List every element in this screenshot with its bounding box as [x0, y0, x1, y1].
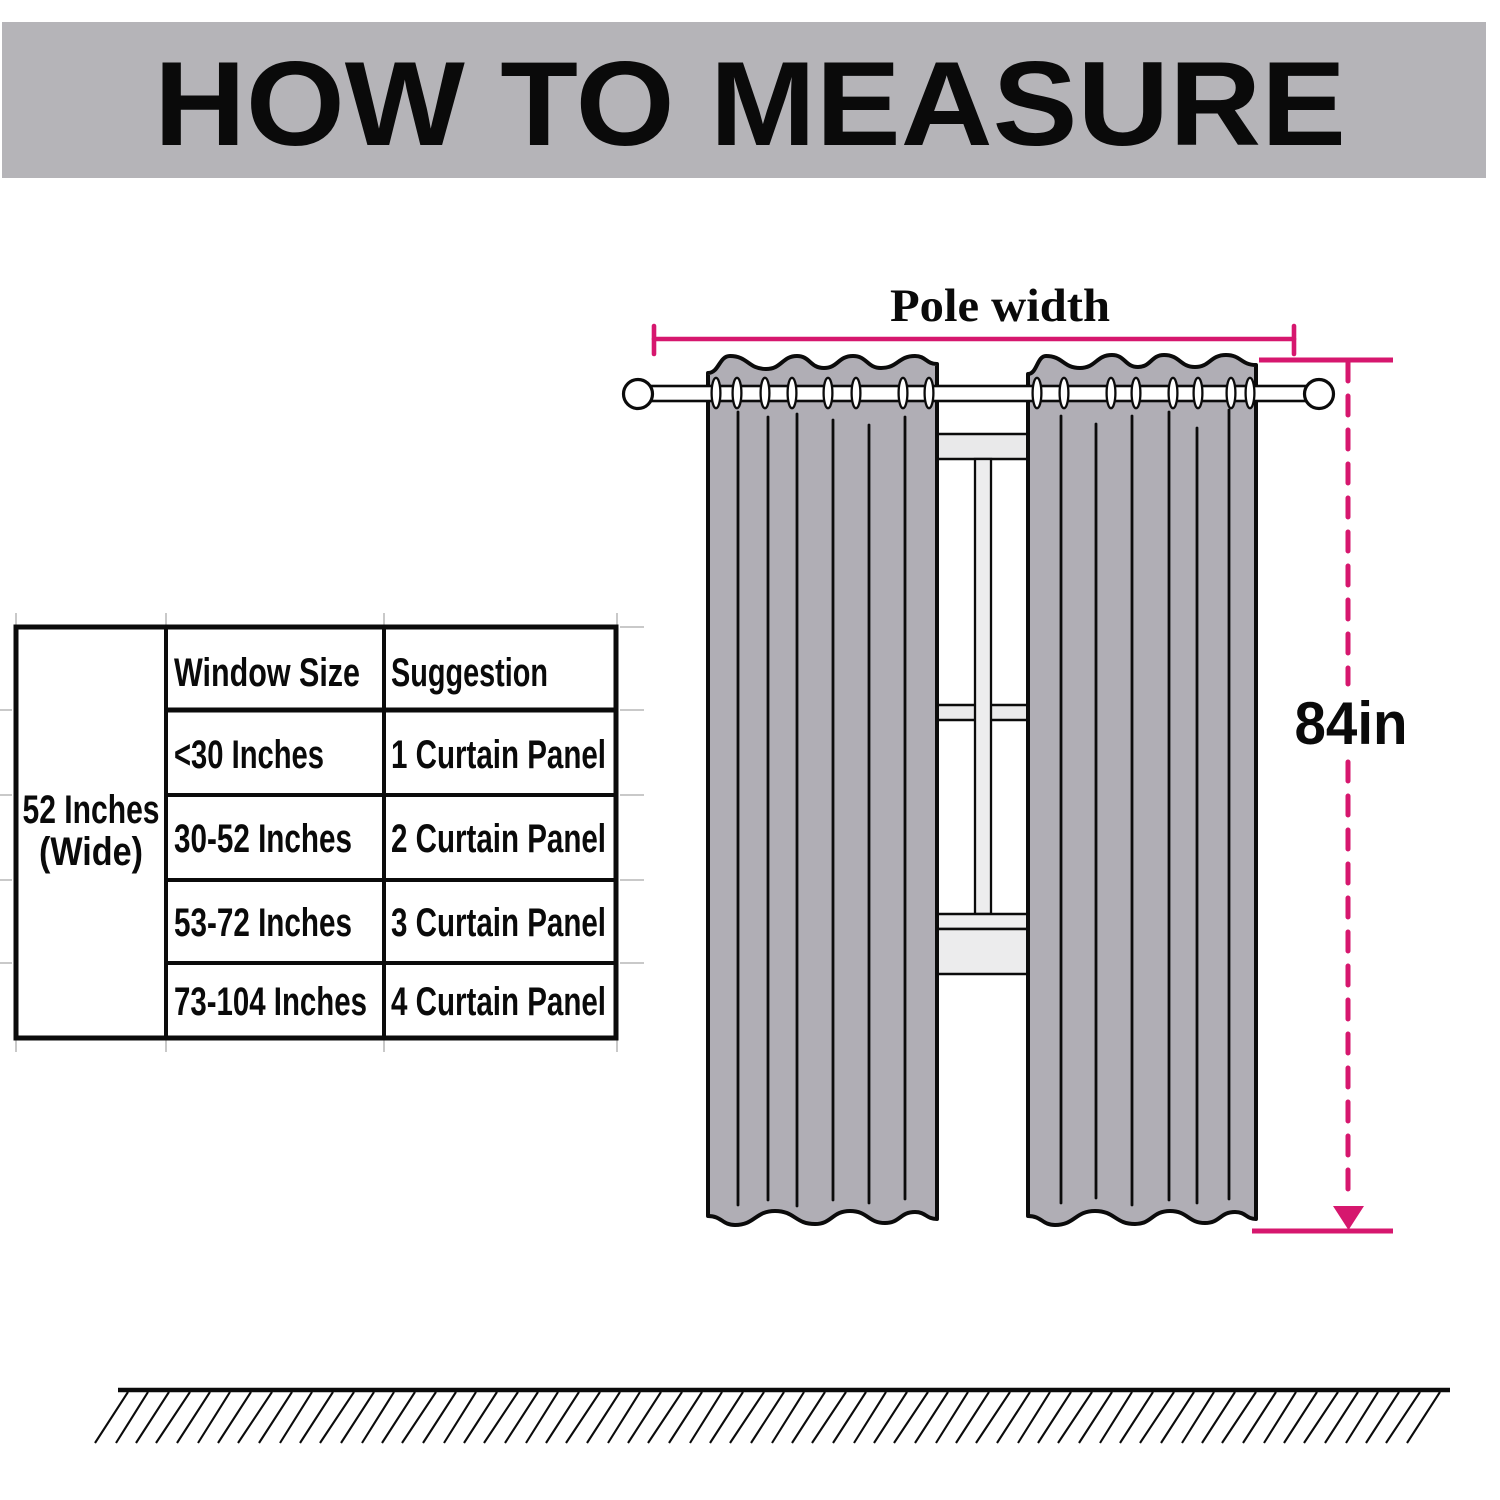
svg-text:Window Size: Window Size [174, 651, 360, 695]
svg-text:30-52 Inches: 30-52 Inches [174, 817, 352, 861]
svg-text:52 Inches: 52 Inches [23, 788, 160, 832]
svg-text:3 Curtain Panel: 3 Curtain Panel [391, 901, 606, 945]
svg-text:1 Curtain Panel: 1 Curtain Panel [391, 733, 606, 777]
svg-text:84in: 84in [1295, 690, 1408, 757]
svg-text:2 Curtain Panel: 2 Curtain Panel [391, 817, 606, 861]
svg-text:(Wide): (Wide) [39, 830, 143, 874]
svg-text:Suggestion: Suggestion [391, 651, 548, 695]
svg-text:53-72 Inches: 53-72 Inches [174, 901, 352, 945]
svg-text:73-104 Inches: 73-104 Inches [174, 980, 367, 1024]
svg-text:4 Curtain Panel: 4 Curtain Panel [391, 980, 606, 1024]
svg-text:Pole width: Pole width [890, 280, 1110, 332]
svg-text:<30 Inches: <30 Inches [174, 733, 324, 777]
svg-text:HOW TO MEASURE: HOW TO MEASURE [154, 37, 1346, 171]
